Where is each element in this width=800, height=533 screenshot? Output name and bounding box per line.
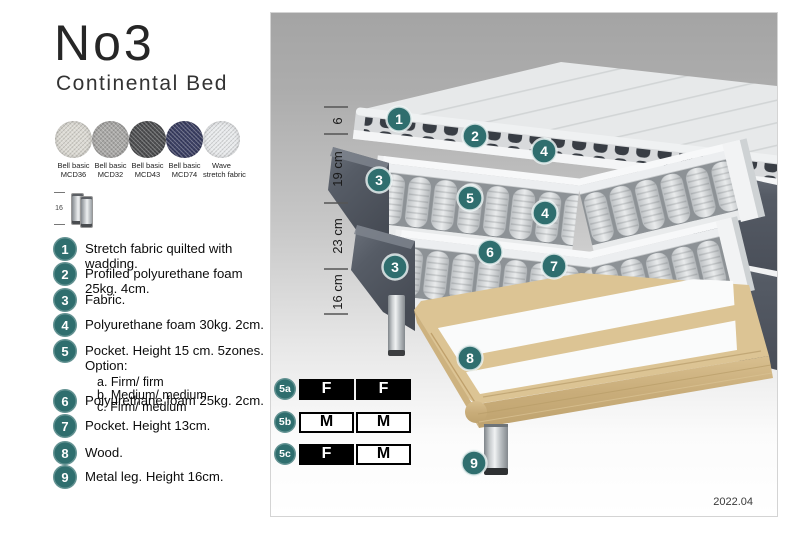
firmness-row-5b: 5b M M <box>274 411 413 433</box>
fabric-swatch-circle[interactable] <box>92 121 129 158</box>
callout-2: 2 <box>463 124 488 149</box>
back-metal-leg <box>388 295 405 356</box>
firmness-badge: 5a <box>274 378 296 400</box>
legend-item-text: Metal leg. Height 16cm. <box>85 465 224 484</box>
version-label: 2022.04 <box>713 496 753 508</box>
legend-item-text: Polyurethane foam 30kg. 2cm. <box>85 313 264 332</box>
legend-item-9: 9 Metal leg. Height 16cm. <box>53 465 224 489</box>
callout-9: 9 <box>462 451 487 476</box>
callout-8: 8 <box>458 346 483 371</box>
fabric-swatches: Bell basicMCD36 Bell basicMCD32 Bell bas… <box>55 121 240 180</box>
legend-item-6: 6 Polyurethane foam 25kg. 2cm. <box>53 389 264 413</box>
metal-leg-thumbnail: 16 <box>52 190 112 232</box>
fabric-swatch-circle[interactable] <box>129 121 166 158</box>
firmness-badge: 5c <box>274 443 296 465</box>
fabric-swatch[interactable]: Bell basicMCD36 <box>55 121 92 180</box>
legend-number-badge: 5 <box>53 339 77 363</box>
page-subtitle: Continental Bed <box>56 72 228 96</box>
fabric-swatch-label: Bell basicMCD74 <box>166 161 203 180</box>
legend-item-7: 7 Pocket. Height 13cm. <box>53 414 210 438</box>
legend-item-text: Fabric. <box>85 288 125 307</box>
leg-height-value: 16 <box>55 205 63 212</box>
firmness-cell: F <box>299 379 354 400</box>
svg-text:9: 9 <box>470 455 478 471</box>
firmness-cell: M <box>299 412 354 433</box>
legend-item-text-line: Pocket. Height 15 cm. 5zones. Option: <box>85 343 264 373</box>
svg-text:7: 7 <box>550 258 558 274</box>
legend-number-badge: 1 <box>53 237 77 261</box>
svg-text:2: 2 <box>471 128 479 144</box>
pocket-option-a: a. Firm/ firm <box>97 376 269 388</box>
legend-number-badge: 2 <box>53 262 77 286</box>
svg-text:1: 1 <box>395 111 403 127</box>
legend-item-text: Polyurethane foam 25kg. 2cm. <box>85 389 264 408</box>
legend-number-badge: 6 <box>53 389 77 413</box>
ruler-tick <box>54 224 65 225</box>
legend-item-3: 3 Fabric. <box>53 288 125 312</box>
legend-number-badge: 9 <box>53 465 77 489</box>
svg-text:5: 5 <box>466 190 474 206</box>
callout-6: 6 <box>478 240 503 265</box>
callout-5: 5 <box>458 186 483 211</box>
fabric-swatch-label: Bell basicMCD36 <box>55 161 92 180</box>
callout-1: 1 <box>387 107 412 132</box>
dim-lower-box: 23 cm <box>330 218 345 253</box>
firmness-badge: 5b <box>274 411 296 433</box>
callout-3a: 3 <box>367 168 392 193</box>
fabric-swatch-circle[interactable] <box>203 121 240 158</box>
front-metal-leg <box>484 424 508 475</box>
svg-text:6: 6 <box>486 244 494 260</box>
legend-number-badge: 8 <box>53 441 77 465</box>
firmness-cell: M <box>356 412 411 433</box>
page-title: No3 <box>54 14 155 72</box>
legend-item-8: 8 Wood. <box>53 441 123 465</box>
fabric-swatch-label: Wavestretch fabric <box>203 161 240 180</box>
legend-number-badge: 3 <box>53 288 77 312</box>
firmness-cell: F <box>356 379 411 400</box>
fabric-swatch[interactable]: Wavestretch fabric <box>203 121 240 180</box>
ruler-tick <box>54 192 65 193</box>
svg-text:8: 8 <box>466 350 474 366</box>
fabric-swatch-circle[interactable] <box>55 121 92 158</box>
product-sheet: No3 Continental Bed Bell basicMCD36 Bell… <box>0 0 800 533</box>
callout-3b: 3 <box>383 255 408 280</box>
callout-4a: 4 <box>532 139 557 164</box>
firmness-cell: F <box>299 444 354 465</box>
callout-7: 7 <box>542 254 567 279</box>
metal-leg-icon <box>80 196 93 228</box>
dim-leg: 16 cm <box>330 274 345 309</box>
fabric-swatch-label: Bell basicMCD43 <box>129 161 166 180</box>
legend-item-text: Wood. <box>85 441 123 460</box>
fabric-swatch-circle[interactable] <box>166 121 203 158</box>
firmness-row-5c: 5c F M <box>274 443 413 465</box>
svg-text:3: 3 <box>391 259 399 275</box>
bed-cutaway-illustration: 6 19 cm 23 cm 16 cm 1 2 4 3 5 4 6 3 7 8 … <box>271 13 777 516</box>
bed-cutaway-panel: 6 19 cm 23 cm 16 cm 1 2 4 3 5 4 6 3 7 8 … <box>270 12 778 517</box>
lower-corner-fabric-wedge <box>351 225 415 331</box>
svg-text:3: 3 <box>375 172 383 188</box>
callout-4b: 4 <box>533 201 558 226</box>
dim-top-mattress: 6 <box>330 117 345 124</box>
svg-text:4: 4 <box>541 205 549 221</box>
leg-height-ruler: 16 <box>52 192 66 225</box>
svg-text:4: 4 <box>540 143 548 159</box>
fabric-swatch[interactable]: Bell basicMCD74 <box>166 121 203 180</box>
fabric-swatch[interactable]: Bell basicMCD32 <box>92 121 129 180</box>
firmness-cell: M <box>356 444 411 465</box>
fabric-swatch-label: Bell basicMCD32 <box>92 161 129 180</box>
legend-number-badge: 4 <box>53 313 77 337</box>
fabric-swatch[interactable]: Bell basicMCD43 <box>129 121 166 180</box>
legend-item-text: Pocket. Height 13cm. <box>85 414 210 433</box>
firmness-row-5a: 5a F F <box>274 378 413 400</box>
dim-upper-box: 19 cm <box>330 151 345 186</box>
legend-number-badge: 7 <box>53 414 77 438</box>
legend-item-4: 4 Polyurethane foam 30kg. 2cm. <box>53 313 264 337</box>
